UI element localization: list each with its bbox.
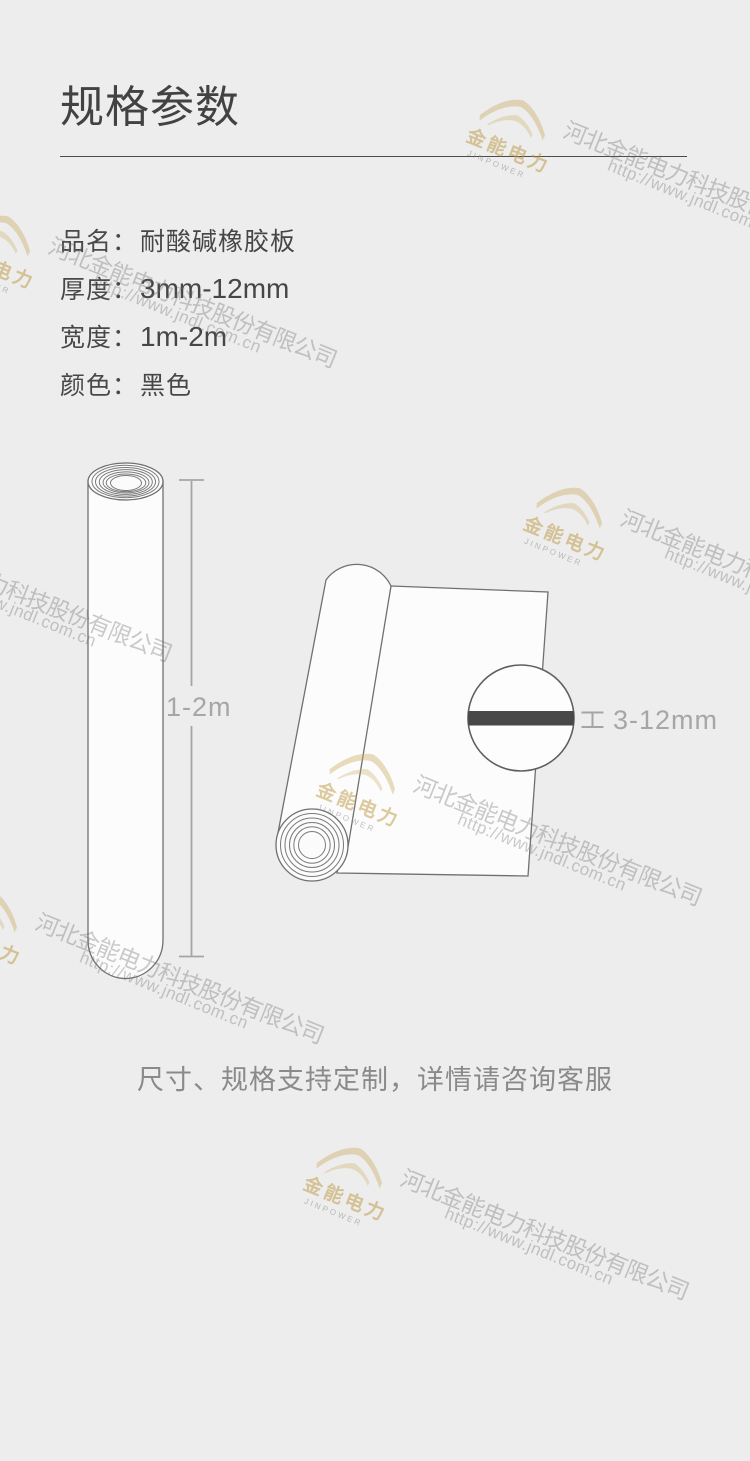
watermark-company-name: 河北金能电力科技股份有限公司 [396,1159,694,1306]
roll-end-spiral [281,814,344,877]
spec-list: 品名： 耐酸碱橡胶板 厚度： 3mm-12mm 宽度： 1m-2m 颜色： 黑色 [60,222,296,414]
title-underline [60,156,687,157]
watermark-logo-text: 金能电力 [0,237,28,291]
watermark-logo-subtext: JINPOWER [0,262,18,299]
thickness-dimension-label: 3-12mm [613,705,718,735]
thickness-magnifier: 3-12mm [465,665,718,771]
watermark-logo-text: 金能电力 [300,1169,381,1223]
jinpower-logo: 金能电力 JINPOWER [517,472,616,571]
jinpower-logo: 金能电力 JINPOWER [0,200,43,299]
watermark-tile: 金能电力 JINPOWER 河北金能电力科技股份有限公司 http://www.… [500,472,750,801]
roll-side-view [88,463,163,979]
watermark-logo-subtext: JINPOWER [297,1194,371,1231]
spec-label: 品名： [60,222,140,258]
length-dimension-label: 1-2m [166,692,232,722]
spec-row-name: 品名： 耐酸碱橡胶板 [60,222,296,270]
watermark-logo-text: 金能电力 [313,775,394,829]
sheet-cross-section-bar [465,711,578,726]
jinpower-swoosh-icon [533,473,614,535]
spec-value: 黑色 [140,366,192,402]
jinpower-swoosh-icon [326,739,407,801]
watermark-tile: 金能电力 JINPOWER 河北金能电力科技股份有限公司 http://www.… [0,494,346,823]
spec-label: 厚度： [60,270,140,306]
watermark-tile: 金能电力 JINPOWER 河北金能电力科技股份有限公司 http://www.… [280,1132,750,1461]
watermark-url: http://www.jndl.com.cn [455,810,630,896]
jinpower-logo: 金能电力 JINPOWER [460,84,559,183]
watermark-company-name: 河北金能电力科技股份有限公司 [31,903,329,1050]
rubber-sheet [337,586,548,876]
watermark-url: http://www.jndl.com.cn [77,948,252,1034]
thickness-dimension-mark [582,713,604,728]
watermark-company-name: 河北金能电力科技股份有限公司 [0,521,177,668]
watermark-logo-subtext: JINPOWER [0,938,5,975]
length-dimension [179,480,204,957]
spec-row-width: 宽度： 1m-2m [60,318,296,366]
watermark-logo-subtext: JINPOWER [310,800,384,837]
watermark-logo-text: 金能电力 [520,509,601,563]
roll-unrolled-view [276,564,548,881]
spec-value: 3mm-12mm [140,273,289,305]
page-title: 规格参数 [60,82,240,134]
watermark-tile: 金能电力 JINPOWER 河北金能电力科技股份有限公司 http://www.… [293,738,750,1067]
product-spec-page: { "meta": { "background_color": "#ededed… [0,0,750,1165]
spec-value: 耐酸碱橡胶板 [140,222,296,258]
watermark-url: http://www.jndl.com.cn [442,1204,617,1290]
watermark-company-name: 河北金能电力科技股份有限公司 [409,765,707,912]
jinpower-swoosh-icon [0,877,29,939]
spec-row-color: 颜色： 黑色 [60,366,296,414]
rubber-roll-body [278,564,391,854]
watermark-logo-text: 金能电力 [0,913,15,967]
spec-label: 颜色： [60,366,140,402]
watermark-tile: 金能电力 JINPOWER 河北金能电力科技股份有限公司 http://www.… [0,876,498,1205]
watermark-company-name: 河北金能电力科技股份有限公司 [616,499,750,646]
watermark-logo-text: 金能电力 [463,121,544,175]
watermark-url: http://www.jndl.com.cn [662,544,750,630]
product-diagram: 1-2m 3-12mm [0,0,750,1165]
watermark-url: http://www.jndl.com.cn [605,156,750,242]
watermark-logo-subtext: JINPOWER [460,146,534,183]
watermark-logo-subtext: JINPOWER [517,534,591,571]
jinpower-logo: 金能电力 JINPOWER [297,1132,396,1231]
jinpower-swoosh-icon [476,85,557,147]
watermark-tile: 金能电力 JINPOWER 河北金能电力科技股份有限公司 http://www.… [443,84,750,413]
jinpower-logo: 金能电力 JINPOWER [310,738,409,837]
spec-value: 1m-2m [140,321,227,353]
watermark-url: http://www.jndl.com.cn [0,566,99,652]
customization-note: 尺寸、规格支持定制，详情请咨询客服 [0,1058,750,1097]
jinpower-swoosh-icon [0,201,42,263]
spec-row-thickness: 厚度： 3mm-12mm [60,270,296,318]
roll-spiral-rings [92,465,159,497]
spec-label: 宽度： [60,318,140,354]
jinpower-logo: 金能电力 JINPOWER [0,876,30,975]
jinpower-swoosh-icon [313,1133,394,1195]
watermark-company-name: 河北金能电力科技股份有限公司 [559,111,750,258]
